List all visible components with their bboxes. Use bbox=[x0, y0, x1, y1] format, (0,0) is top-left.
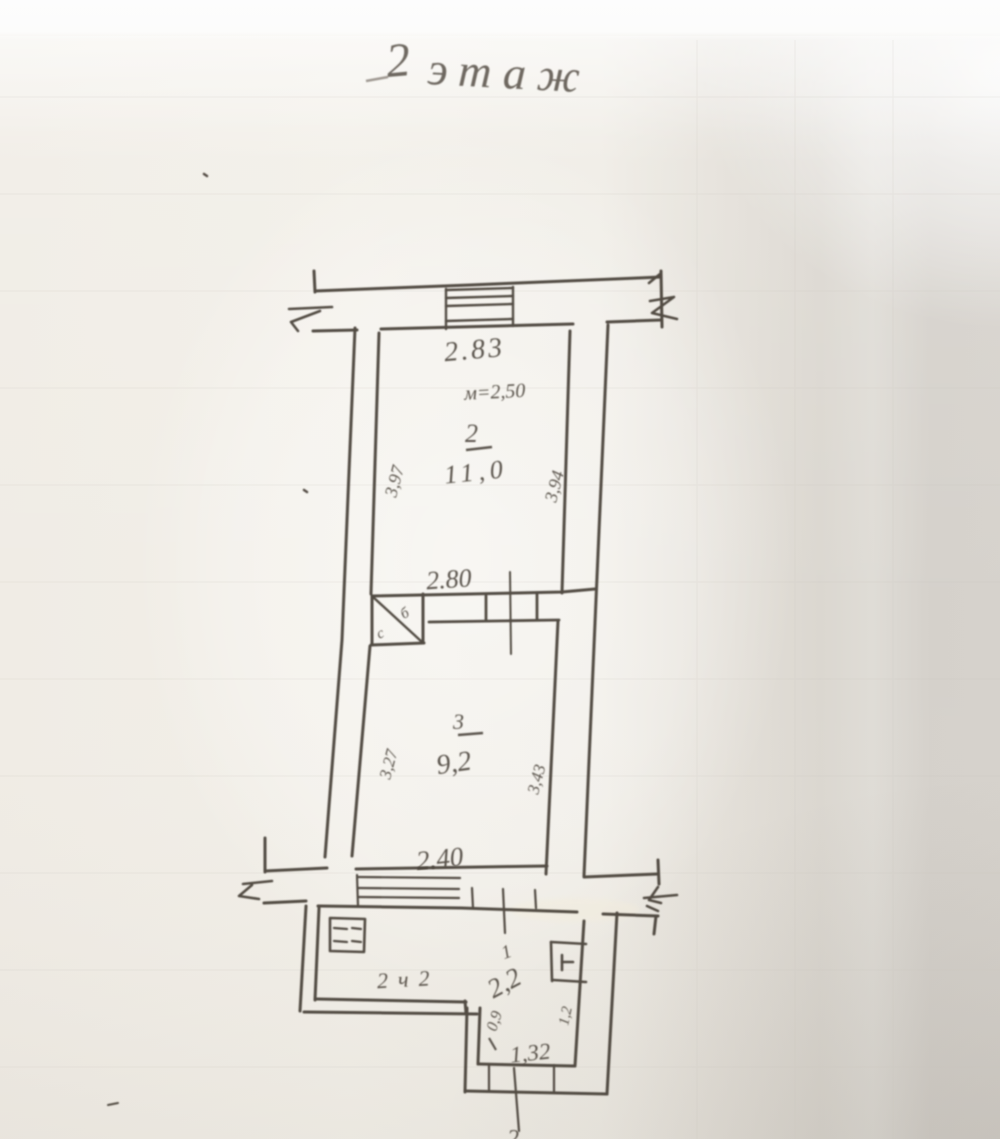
svg-text:2.83: 2.83 bbox=[443, 332, 506, 368]
svg-text:9,2: 9,2 bbox=[434, 746, 473, 782]
svg-text:3: 3 bbox=[452, 709, 464, 734]
svg-text:2.80: 2.80 bbox=[425, 563, 472, 595]
svg-text:м=2,50: м=2,50 bbox=[463, 380, 526, 405]
svg-text:1,32: 1,32 bbox=[509, 1038, 552, 1067]
svg-text:2.40: 2.40 bbox=[415, 841, 466, 876]
svg-text:2: 2 bbox=[384, 33, 413, 88]
svg-text:2: 2 bbox=[507, 1126, 519, 1139]
svg-text:2: 2 bbox=[465, 419, 478, 448]
svg-text:2ч2: 2ч2 bbox=[376, 965, 440, 993]
svg-text:этаж: этаж bbox=[426, 43, 592, 102]
